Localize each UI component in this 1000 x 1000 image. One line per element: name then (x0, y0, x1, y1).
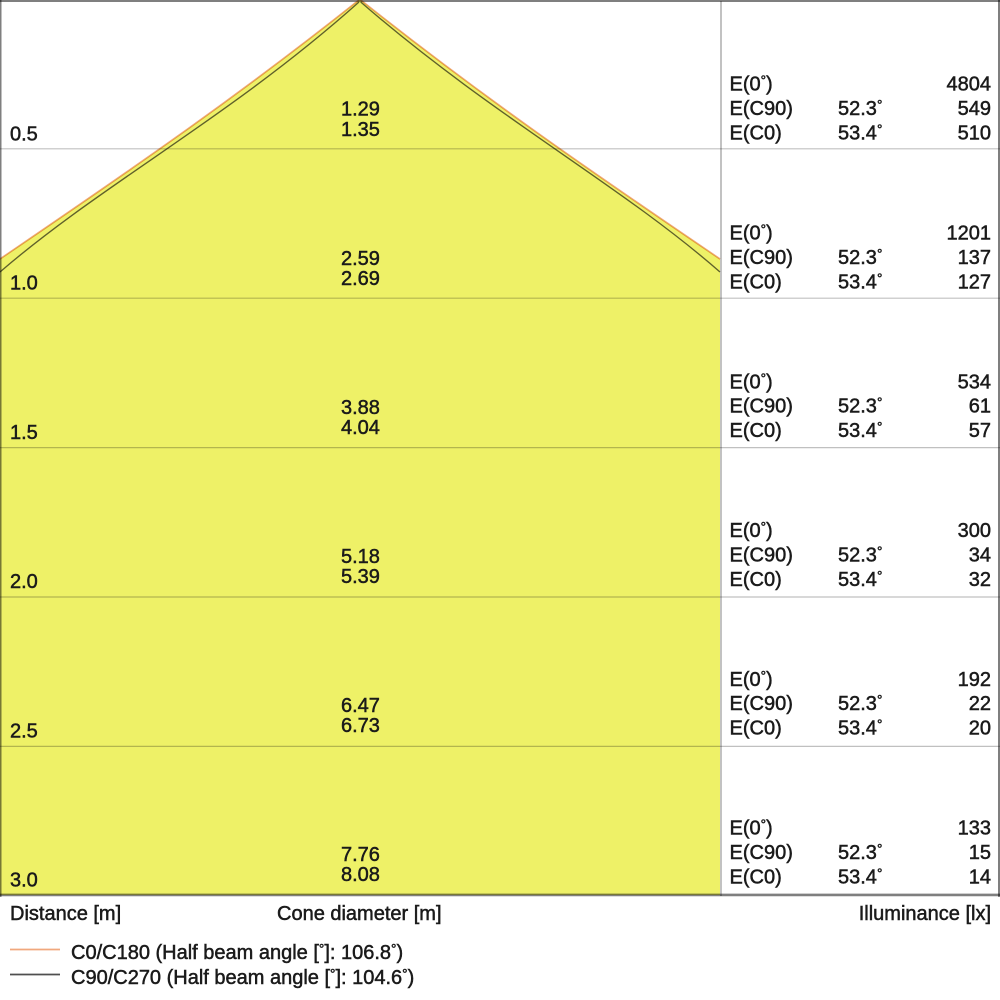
svg-text:7.76: 7.76 (341, 844, 380, 866)
svg-text:137: 137 (958, 247, 991, 269)
svg-text:15: 15 (969, 842, 991, 864)
svg-text:E(C90): E(C90) (730, 98, 793, 120)
svg-text:1.5: 1.5 (10, 422, 38, 444)
svg-text:E(C90): E(C90) (730, 544, 793, 566)
svg-text:E(C0): E(C0) (730, 271, 782, 293)
svg-text:1.35: 1.35 (341, 119, 380, 141)
svg-text:E(C90): E(C90) (730, 396, 793, 418)
svg-text:57: 57 (969, 420, 991, 442)
svg-text:E(C0): E(C0) (730, 123, 782, 145)
svg-text:E(0°): E(0°) (730, 73, 773, 96)
svg-text:E(0°): E(0°) (730, 668, 773, 691)
svg-text:C0/C180 (Half beam angle [°]:: C0/C180 (Half beam angle [°]: 106.8°) (71, 942, 403, 965)
svg-text:549: 549 (958, 98, 991, 120)
svg-text:E(C0): E(C0) (730, 569, 782, 591)
svg-text:E(C0): E(C0) (730, 718, 782, 740)
svg-text:E(0°): E(0°) (730, 222, 773, 245)
svg-text:3.0: 3.0 (10, 870, 38, 892)
svg-text:6.47: 6.47 (341, 695, 380, 717)
svg-text:E(C90): E(C90) (730, 842, 793, 864)
svg-text:52.3°: 52.3° (838, 544, 882, 567)
svg-text:300: 300 (958, 520, 991, 542)
svg-text:133: 133 (958, 818, 991, 840)
svg-text:1.0: 1.0 (10, 273, 38, 295)
svg-text:1.29: 1.29 (341, 99, 380, 121)
svg-text:52.3°: 52.3° (838, 98, 882, 121)
svg-text:Cone diameter [m]: Cone diameter [m] (277, 903, 442, 925)
svg-text:52.3°: 52.3° (838, 246, 882, 269)
svg-text:52.3°: 52.3° (838, 842, 882, 865)
svg-text:52.3°: 52.3° (838, 395, 882, 418)
svg-text:53.4°: 53.4° (838, 271, 882, 294)
svg-text:53.4°: 53.4° (838, 122, 882, 145)
svg-text:0.5: 0.5 (10, 123, 38, 145)
svg-text:14: 14 (969, 867, 991, 889)
svg-text:8.08: 8.08 (341, 864, 380, 886)
svg-text:E(0°): E(0°) (730, 817, 773, 840)
svg-text:Distance [m]: Distance [m] (10, 903, 121, 925)
svg-text:3.88: 3.88 (341, 397, 380, 419)
svg-text:2.5: 2.5 (10, 720, 38, 742)
svg-text:E(0°): E(0°) (730, 520, 773, 543)
svg-text:5.39: 5.39 (341, 566, 380, 588)
svg-text:510: 510 (958, 123, 991, 145)
svg-text:192: 192 (958, 669, 991, 691)
svg-text:53.4°: 53.4° (838, 420, 882, 443)
svg-text:127: 127 (958, 271, 991, 293)
svg-text:22: 22 (969, 693, 991, 715)
svg-text:E(C90): E(C90) (730, 247, 793, 269)
svg-text:61: 61 (969, 396, 991, 418)
svg-text:4804: 4804 (947, 74, 992, 96)
svg-text:C90/C270 (Half beam angle [°]:: C90/C270 (Half beam angle [°]: 104.6°) (71, 967, 414, 990)
svg-text:Illuminance [lx]: Illuminance [lx] (859, 903, 991, 925)
svg-text:2.59: 2.59 (341, 248, 380, 270)
svg-text:E(0°): E(0°) (730, 371, 773, 394)
svg-text:53.4°: 53.4° (838, 717, 882, 740)
svg-text:E(C0): E(C0) (730, 420, 782, 442)
svg-text:53.4°: 53.4° (838, 866, 882, 889)
svg-text:5.18: 5.18 (341, 546, 380, 568)
svg-text:32: 32 (969, 569, 991, 591)
svg-text:534: 534 (958, 371, 991, 393)
svg-text:1201: 1201 (947, 223, 992, 245)
svg-text:6.73: 6.73 (341, 715, 380, 737)
svg-text:34: 34 (969, 544, 991, 566)
svg-text:4.04: 4.04 (341, 417, 380, 439)
svg-text:20: 20 (969, 718, 991, 740)
svg-text:E(C0): E(C0) (730, 867, 782, 889)
svg-text:2.69: 2.69 (341, 268, 380, 290)
svg-text:52.3°: 52.3° (838, 693, 882, 716)
svg-text:2.0: 2.0 (10, 571, 38, 593)
svg-text:53.4°: 53.4° (838, 568, 882, 591)
svg-text:E(C90): E(C90) (730, 693, 793, 715)
